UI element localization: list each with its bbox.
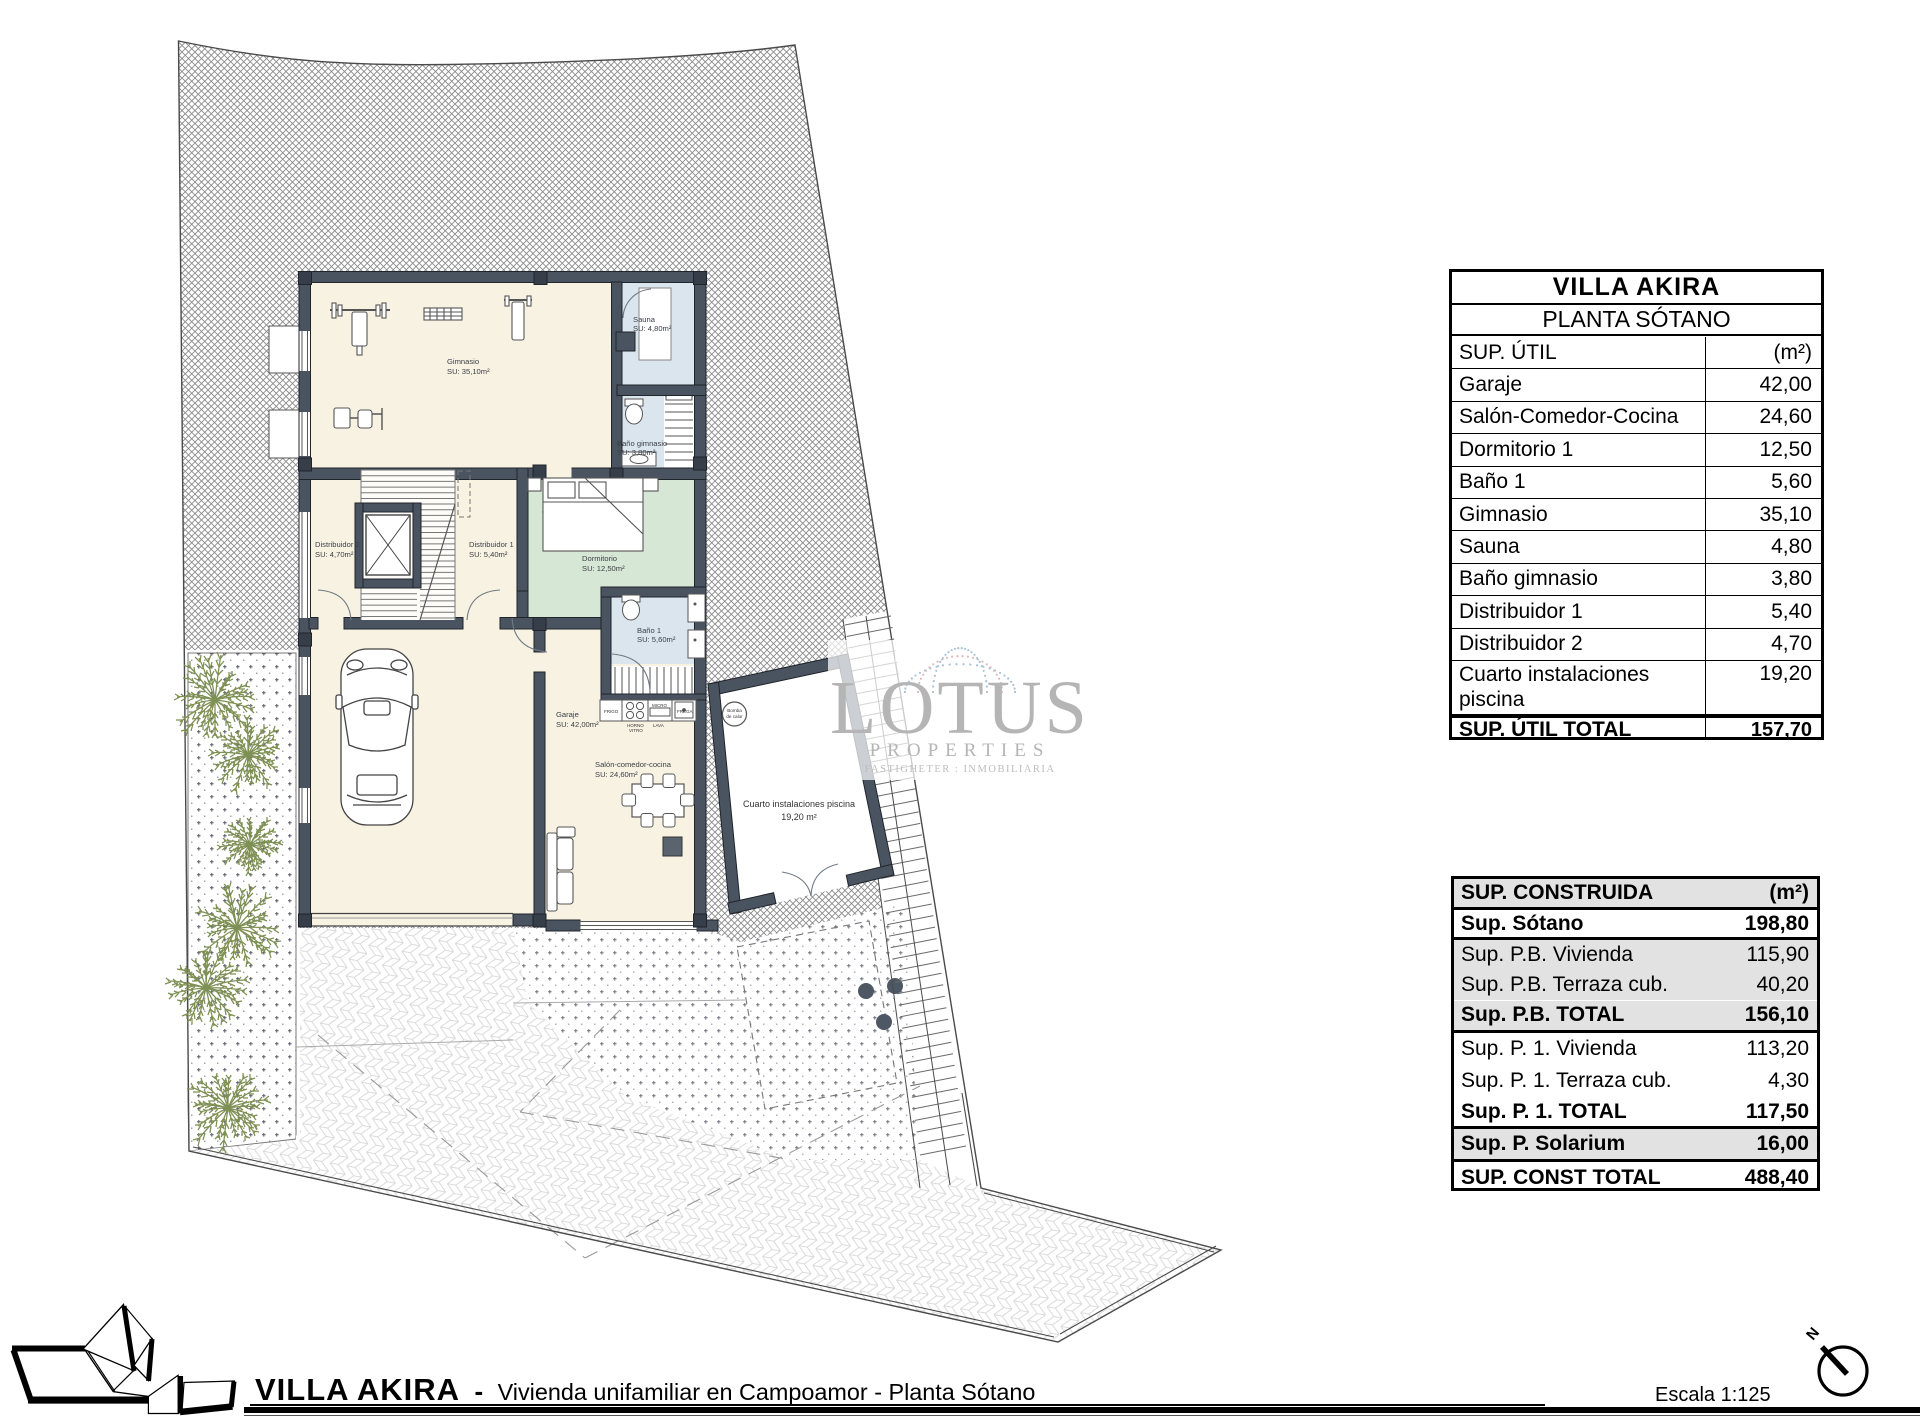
svg-text:FRIGO: FRIGO — [604, 709, 619, 714]
svg-text:SU: 42,00m²: SU: 42,00m² — [556, 720, 599, 729]
svg-text:SU: 12,50m²: SU: 12,50m² — [582, 564, 625, 573]
svg-text:Baño gimnasio: Baño gimnasio — [617, 439, 667, 448]
svg-text:LAVA: LAVA — [653, 723, 664, 728]
svg-text:SU: 5,40m²: SU: 5,40m² — [469, 550, 508, 559]
svg-text:FASTIGHETER : INMOBILIARIA: FASTIGHETER : INMOBILIARIA — [864, 764, 1055, 775]
svg-text:Dormitorio: Dormitorio — [582, 554, 617, 563]
svg-text:FREGA: FREGA — [677, 709, 693, 714]
svg-text:de calor: de calor — [726, 714, 743, 719]
svg-text:Distribuidor 2: Distribuidor 2 — [315, 540, 360, 549]
svg-text:Gimnasio: Gimnasio — [447, 357, 479, 366]
svg-text:VITRO: VITRO — [629, 728, 643, 733]
svg-text:Cuarto instalaciones piscina: Cuarto instalaciones piscina — [743, 799, 855, 809]
svg-text:Salón-comedor-cocina: Salón-comedor-cocina — [595, 760, 672, 769]
svg-text:Distribuidor 1: Distribuidor 1 — [469, 540, 514, 549]
svg-text:19,20 m²: 19,20 m² — [781, 812, 817, 822]
svg-text:SU: 5,60m²: SU: 5,60m² — [637, 635, 676, 644]
svg-text:Garaje: Garaje — [556, 710, 579, 719]
svg-text:MICRO: MICRO — [652, 703, 667, 708]
svg-text:LOTUS: LOTUS — [830, 666, 1090, 750]
svg-text:SU: 4,80m²: SU: 4,80m² — [633, 324, 672, 333]
svg-text:SU: 3,80m²: SU: 3,80m² — [617, 448, 656, 457]
svg-text:PROPERTIES: PROPERTIES — [870, 740, 1051, 761]
svg-text:SU: 24,60m²: SU: 24,60m² — [595, 770, 638, 779]
svg-text:Bomba: Bomba — [727, 708, 742, 713]
svg-text:SU: 35,10m²: SU: 35,10m² — [447, 367, 490, 376]
svg-text:Baño 1: Baño 1 — [637, 626, 661, 635]
svg-text:SU: 4,70m²: SU: 4,70m² — [315, 550, 354, 559]
svg-text:Sauna: Sauna — [633, 315, 656, 324]
